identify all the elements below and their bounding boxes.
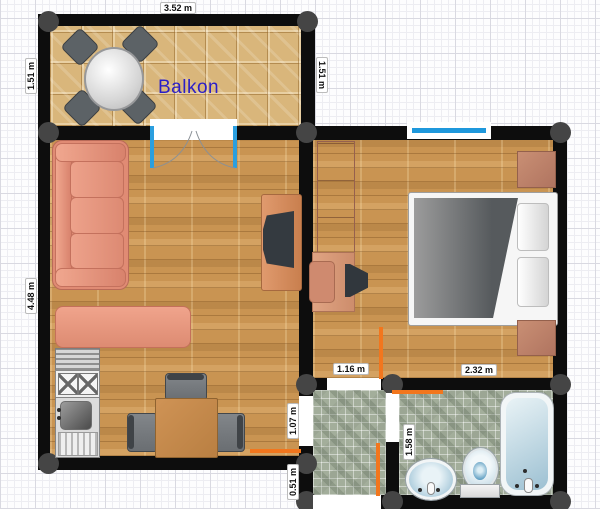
- balcony-round-table[interactable]: [84, 47, 144, 111]
- dim-balcony-depth-left: 1.51 m: [25, 58, 37, 94]
- stove-burner: [58, 373, 78, 395]
- kitchen-sink-bowl: [60, 401, 92, 430]
- dim-bed-zone-width: 2.32 m: [461, 364, 497, 376]
- bathroom-door-opening[interactable]: [386, 393, 399, 442]
- sideboard[interactable]: [55, 306, 191, 348]
- kitchen-sink-unit[interactable]: [55, 397, 100, 458]
- dim-living-room-depth: 4.48 m: [25, 278, 37, 314]
- dining-chair[interactable]: [127, 413, 158, 452]
- bathtub-faucet-icon: [524, 478, 533, 493]
- corner-post: [296, 122, 317, 143]
- bedroom-window-glass: [412, 128, 486, 133]
- corner-post: [296, 453, 317, 474]
- corner-post: [382, 491, 403, 509]
- dim-balcony-depth-right: 1.51 m: [316, 57, 328, 93]
- corner-post: [550, 491, 571, 509]
- bed-pillow: [517, 257, 549, 307]
- entry-door-opening[interactable]: [313, 495, 381, 509]
- door-swing-arcs-icon: [150, 128, 238, 170]
- bathroom-sink[interactable]: [406, 459, 456, 500]
- nightstand[interactable]: [517, 320, 556, 356]
- bathtub[interactable]: [500, 392, 554, 496]
- corner-post: [550, 122, 571, 143]
- wall-balcony-top: [38, 14, 315, 26]
- dining-chair[interactable]: [165, 373, 207, 401]
- dim-living-door-height: 1.07 m: [287, 403, 299, 439]
- bed-blanket: [414, 198, 518, 318]
- bedroom-door-opening[interactable]: [327, 378, 381, 390]
- bedroom-door-leaf[interactable]: [379, 327, 383, 379]
- corner-post: [297, 11, 318, 32]
- stove-burner: [78, 373, 98, 395]
- desk-chair[interactable]: [309, 261, 335, 303]
- wall-middle: [299, 126, 313, 509]
- sofa-cushion: [70, 161, 124, 198]
- sofa[interactable]: [52, 140, 129, 290]
- dim-bedroom-door-width: 1.16 m: [333, 363, 369, 375]
- wall-living-bottom: [38, 456, 313, 470]
- bathroom-door-leaf[interactable]: [392, 390, 443, 394]
- balcony-room-label: Balkon: [158, 77, 219, 99]
- sofa-armrest: [55, 143, 126, 162]
- corner-post: [38, 11, 59, 32]
- dining-chair[interactable]: [214, 413, 245, 452]
- wall-balcony-right: [301, 14, 315, 140]
- dim-balcony-width: 3.52 m: [160, 2, 196, 14]
- sofa-armrest: [55, 268, 126, 287]
- sink-faucet-icon: [427, 482, 435, 495]
- wall-left: [38, 126, 50, 470]
- entry-door-leaf[interactable]: [376, 443, 380, 496]
- sofa-cushion: [70, 197, 124, 234]
- kitchen-faucet-icon: [57, 408, 61, 412]
- dining-table[interactable]: [155, 398, 218, 458]
- stove[interactable]: [55, 370, 100, 398]
- tv[interactable]: [263, 211, 294, 268]
- corner-post: [38, 122, 59, 143]
- corner-post: [550, 374, 571, 395]
- living-door-leaf[interactable]: [250, 449, 301, 453]
- kitchen-drainboard: [58, 432, 98, 456]
- dim-entry-width: 0.51 m: [287, 464, 299, 500]
- dim-bathroom-depth: 1.58 m: [403, 424, 415, 460]
- living-door-opening[interactable]: [299, 396, 313, 446]
- corner-post: [296, 374, 317, 395]
- toilet-tank: [460, 484, 500, 498]
- double-bed[interactable]: [408, 192, 558, 326]
- bed-pillow: [517, 203, 549, 251]
- sofa-cushion: [70, 233, 124, 269]
- wardrobe[interactable]: [317, 141, 355, 255]
- radiator[interactable]: [55, 348, 100, 371]
- floor-plan-canvas: Balkon: [0, 0, 600, 509]
- nightstand[interactable]: [517, 151, 556, 188]
- kitchen-faucet-icon: [57, 416, 61, 420]
